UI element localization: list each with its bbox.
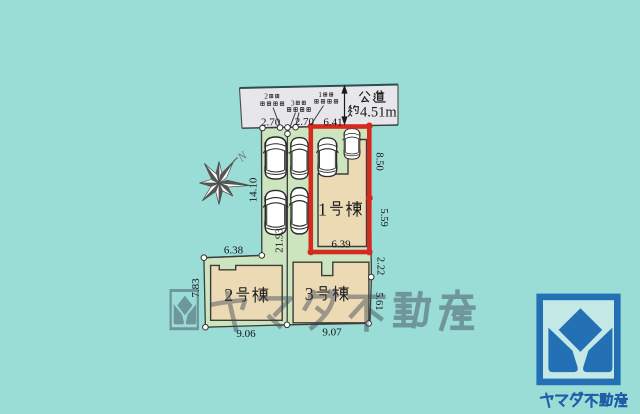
svg-text:2.70: 2.70 (261, 116, 281, 128)
svg-text:1: 1 (318, 199, 327, 219)
svg-text:7.83: 7.83 (190, 278, 202, 298)
svg-text:9.07: 9.07 (322, 327, 342, 339)
svg-text:2.70: 2.70 (295, 116, 315, 128)
svg-text:4.51m: 4.51m (360, 105, 397, 121)
svg-text:1: 1 (318, 90, 322, 99)
svg-text:2.22: 2.22 (375, 257, 386, 275)
svg-text:6.38: 6.38 (224, 245, 244, 257)
svg-text:9.06: 9.06 (236, 328, 256, 340)
svg-text:6.39: 6.39 (331, 239, 351, 251)
svg-text:8.50: 8.50 (373, 152, 384, 170)
svg-text:21.93: 21.93 (274, 228, 286, 253)
svg-text:5.59: 5.59 (378, 208, 389, 226)
svg-text:2: 2 (264, 92, 268, 101)
svg-text:14.10: 14.10 (248, 177, 260, 202)
svg-text:6.41: 6.41 (323, 117, 342, 129)
svg-text:3: 3 (291, 98, 295, 107)
